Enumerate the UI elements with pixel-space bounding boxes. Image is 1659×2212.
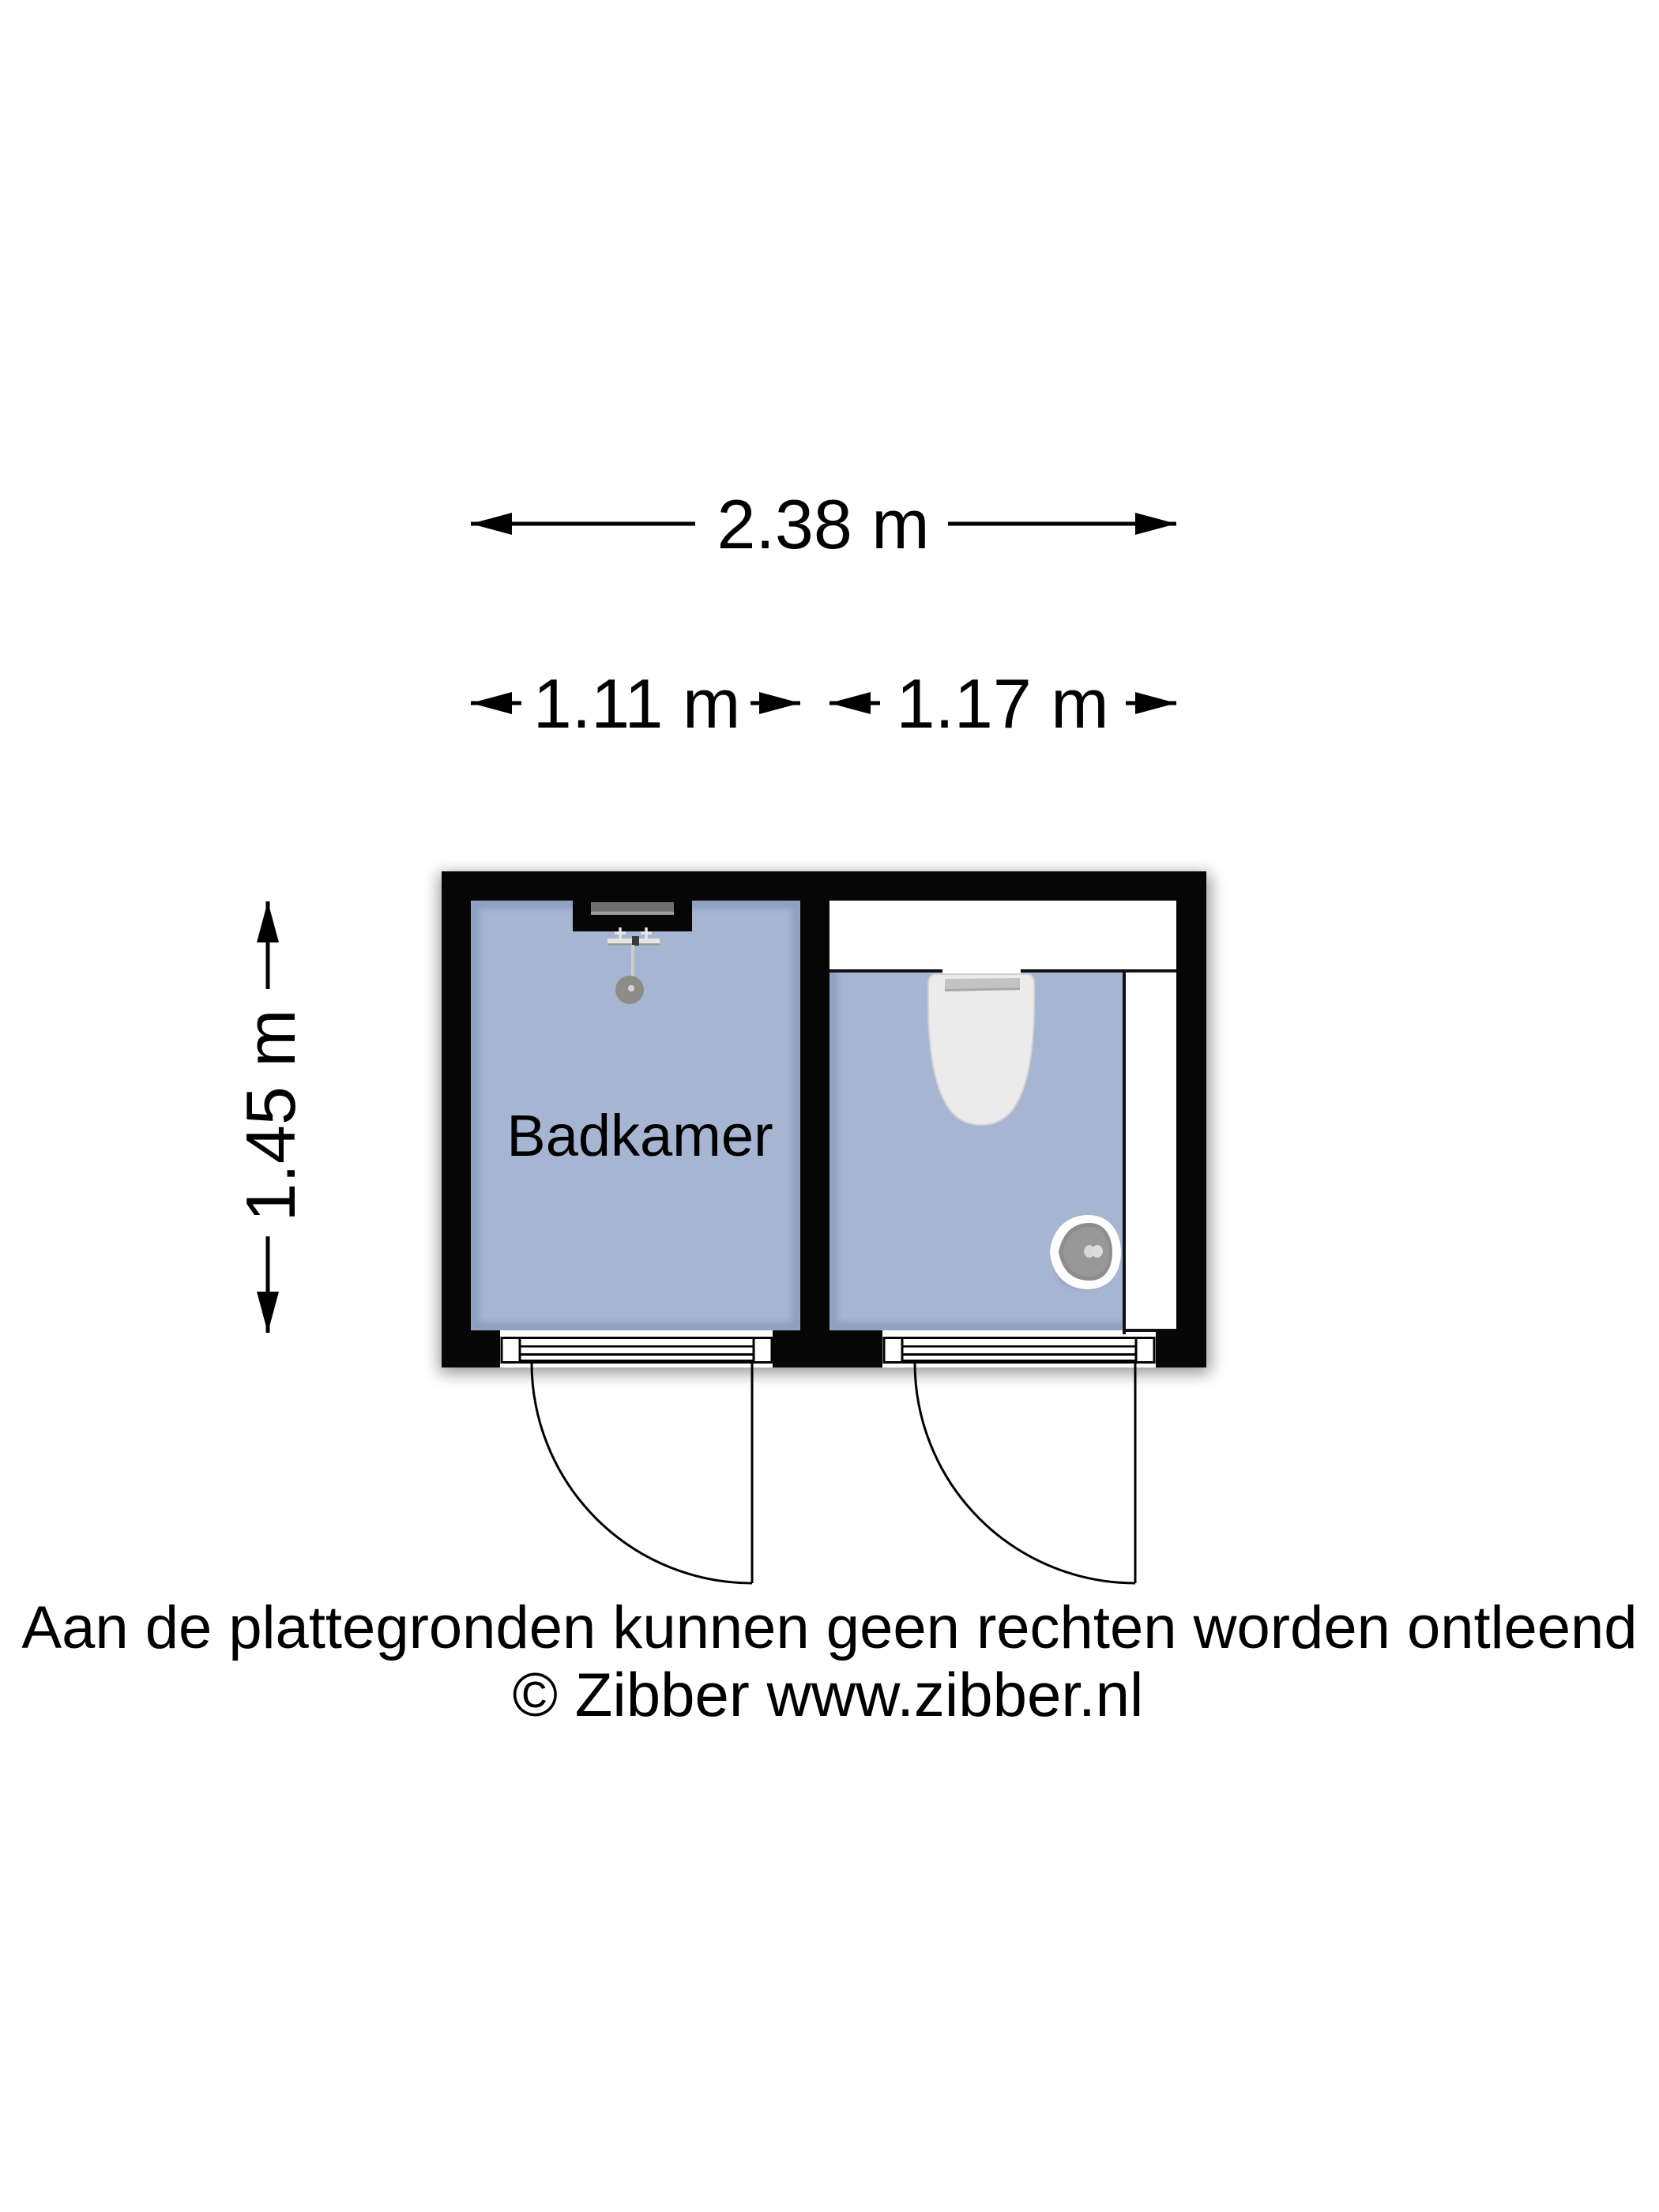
svg-text:Badkamer: Badkamer [506, 1103, 773, 1168]
svg-text:2.38 m: 2.38 m [717, 485, 929, 563]
svg-text:1.11 m: 1.11 m [533, 664, 741, 743]
svg-text:1.17 m: 1.17 m [896, 664, 1108, 743]
svg-text:1.45 m: 1.45 m [231, 1009, 310, 1221]
svg-text:Aan de plattegronden kunnen ge: Aan de plattegronden kunnen geen rechten… [21, 1594, 1637, 1661]
svg-text:© Zibber www.zibber.nl: © Zibber www.zibber.nl [513, 1660, 1144, 1729]
